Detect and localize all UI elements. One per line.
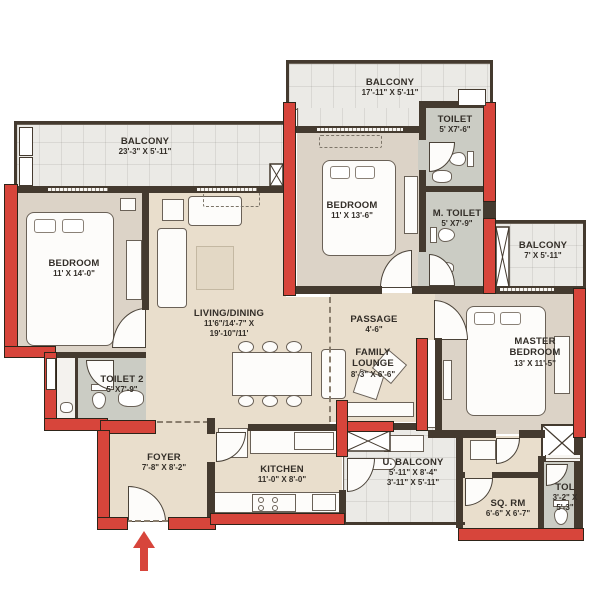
room-label-passage: PASSAGE 4'-6" bbox=[326, 314, 422, 335]
red-wall-bottom-right bbox=[458, 528, 584, 541]
wall-ubalcony-bottom bbox=[343, 522, 465, 525]
pedestal-lobby bbox=[60, 402, 73, 413]
floor-plan: BALCONY 23'-3" X 5'-11" BALCONY 17'-11" … bbox=[0, 0, 600, 600]
room-label-balcony-top-left: BALCONY 23'-3" X 5'-11" bbox=[70, 136, 220, 157]
room-label-family-lounge: FAMILY LOUNGE 8'-3" X 6'-6" bbox=[343, 347, 403, 379]
red-wall-left bbox=[4, 184, 18, 356]
pillow bbox=[34, 219, 56, 233]
red-wall-entry-right bbox=[168, 517, 216, 530]
wall-balcony1-top bbox=[14, 121, 286, 124]
window-tol bbox=[545, 455, 581, 461]
wall-foyer-kitchen-b bbox=[207, 462, 215, 518]
doorgap-toilet-top bbox=[418, 140, 427, 170]
red-wall-entry-left bbox=[97, 517, 128, 530]
wall-master-bottom-b bbox=[519, 430, 545, 438]
dining-chair bbox=[262, 395, 278, 407]
wall-foyer-kitchen-a bbox=[207, 418, 215, 434]
dining-chair bbox=[238, 395, 254, 407]
red-wall-mtoilet-right bbox=[483, 218, 496, 294]
side-table-living bbox=[162, 199, 184, 221]
wall-balcony2-right bbox=[490, 60, 493, 104]
red-wall-lounge-right bbox=[416, 338, 428, 431]
red-wall-living-bedroommid bbox=[283, 102, 296, 296]
wall-toilet2-top bbox=[52, 352, 146, 358]
wall-balconyright-top bbox=[485, 220, 585, 223]
corridor-box bbox=[470, 440, 496, 460]
room-label-bedroom-left: BEDROOM 11' X 14'-0" bbox=[18, 258, 130, 279]
wall-balconyright-right bbox=[583, 220, 586, 293]
red-wall-foyer-left bbox=[97, 430, 110, 529]
dashed-cabinet-mid bbox=[319, 135, 382, 148]
window-living bbox=[197, 187, 257, 192]
doorgap-m-toilet bbox=[418, 252, 427, 286]
entry-arrow-stem bbox=[140, 547, 148, 571]
column-lobby bbox=[46, 358, 56, 390]
room-label-bedroom-mid: BEDROOM 11' X 13'-6" bbox=[300, 200, 404, 221]
pillow bbox=[500, 312, 521, 325]
red-wall-kitchen-right bbox=[336, 400, 348, 457]
wall-passage-top-right bbox=[412, 286, 583, 294]
wall-balcony1-left bbox=[14, 121, 17, 188]
pillow bbox=[330, 166, 350, 179]
shaft-x-column-balcony1 bbox=[269, 163, 284, 187]
side-table bbox=[120, 198, 136, 211]
room-label-tol: TOL 3'-2" X 5'-3" bbox=[543, 482, 587, 513]
wall-sqrm-top-b bbox=[492, 472, 544, 478]
pillow bbox=[355, 166, 375, 179]
wall-bedroomleft-living bbox=[142, 186, 149, 310]
wardrobe-bedroom-mid bbox=[404, 176, 418, 234]
entry-arrow-icon bbox=[133, 531, 155, 548]
room-label-living-dining: LIVING/DINING 11'6"/14'-7" X 19'-10"/11' bbox=[155, 308, 303, 339]
wall-bedroommid-bottom bbox=[294, 286, 382, 294]
pillow bbox=[62, 219, 84, 233]
dining-chair bbox=[286, 395, 302, 407]
stove-burner bbox=[272, 505, 278, 511]
column-balcony1-b bbox=[19, 157, 33, 186]
wall-toilet-divider bbox=[419, 186, 485, 192]
room-label-balcony-top-mid: BALCONY 17'-11" X 5'-11" bbox=[315, 77, 465, 98]
window-bedroom-mid bbox=[317, 127, 403, 132]
wall-balcony2-top bbox=[286, 60, 493, 63]
stove-burner bbox=[272, 497, 278, 503]
bench-lounge bbox=[342, 402, 414, 417]
stove-burner bbox=[258, 505, 264, 511]
dresser-master bbox=[443, 360, 452, 400]
red-wall-master-right bbox=[573, 288, 586, 438]
room-label-foyer: FOYER 7'-8" X 8'-2" bbox=[120, 452, 208, 473]
room-label-toilet-top: TOILET 5' X7'-6" bbox=[424, 114, 486, 135]
red-wall-kitchen-bottom bbox=[210, 513, 345, 525]
room-label-balcony-right: BALCONY 7' X 5'-11" bbox=[503, 240, 583, 261]
window-master bbox=[500, 287, 554, 292]
room-label-m-toilet: M. TOILET 5' X7'-9" bbox=[424, 208, 490, 229]
pillow bbox=[474, 312, 495, 325]
room-label-sq-rm: SQ. RM 6'-6" X 6'-7" bbox=[466, 498, 550, 519]
window-bedroom-left bbox=[48, 187, 108, 192]
dining-table bbox=[232, 352, 312, 396]
basin-toilet-top bbox=[432, 170, 452, 183]
open-boundary-foyer-top bbox=[157, 421, 209, 423]
stove-burner bbox=[258, 497, 264, 503]
room-label-toilet-2: TOILET 2 5' X7'-9" bbox=[76, 374, 168, 395]
kitchen-appliance bbox=[312, 494, 336, 511]
kitchen-sink bbox=[294, 432, 334, 450]
l-sofa-living bbox=[157, 228, 187, 308]
wall-kitchen-top bbox=[248, 424, 342, 431]
room-label-kitchen: KITCHEN 11'-0" X 8'-0" bbox=[228, 464, 336, 485]
wall-master-left bbox=[435, 338, 442, 434]
column-balcony1-a bbox=[19, 127, 33, 156]
dashed-cabinet-left bbox=[203, 192, 260, 207]
shaft-x-small bbox=[345, 430, 391, 452]
rug-living bbox=[196, 246, 234, 290]
open-boundary-entrance bbox=[126, 520, 168, 522]
wall-lounge-bottom-right bbox=[392, 423, 418, 430]
room-label-u-balcony: U. BALCONY 5'-11" X 8'-4" 3'-11" X 5'-11… bbox=[353, 457, 473, 488]
room-label-master-bedroom: MASTER BEDROOM 13' X 11'-5" bbox=[499, 336, 571, 368]
